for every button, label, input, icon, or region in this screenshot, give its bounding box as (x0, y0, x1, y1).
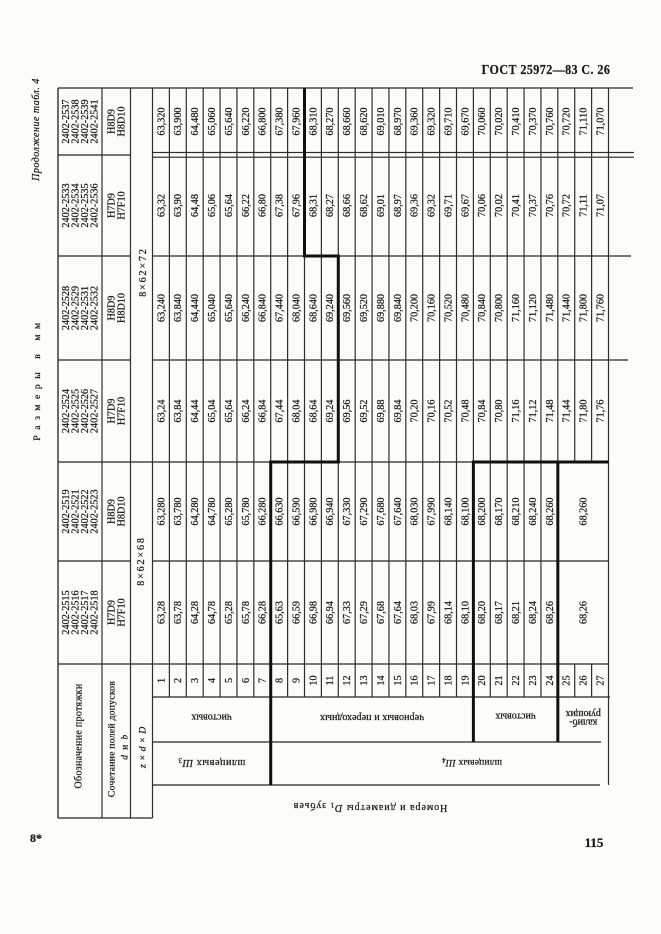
svg-text:66,840: 66,840 (258, 294, 269, 322)
svg-text:H7F10: H7F10 (117, 598, 128, 626)
svg-text:67,38: 67,38 (275, 194, 286, 217)
svg-text:z×d×D: z×d×D (138, 723, 149, 769)
svg-text:68,26: 68,26 (545, 601, 556, 624)
svg-text:71,80: 71,80 (579, 400, 590, 423)
svg-text:65,640: 65,640 (224, 107, 235, 135)
svg-text:68,31: 68,31 (308, 194, 319, 217)
svg-text:66,80: 66,80 (258, 194, 269, 217)
svg-text:70,800: 70,800 (494, 294, 505, 322)
svg-text:71,440: 71,440 (562, 294, 573, 322)
svg-text:15: 15 (393, 675, 404, 685)
svg-text:71,160: 71,160 (511, 294, 522, 322)
svg-text:67,330: 67,330 (342, 497, 353, 525)
svg-text:69,71: 69,71 (444, 194, 455, 217)
svg-text:69,560: 69,560 (342, 294, 353, 322)
svg-text:66,28: 66,28 (258, 601, 269, 624)
svg-text:21: 21 (494, 675, 505, 685)
svg-text:70,72: 70,72 (562, 194, 573, 217)
svg-text:65,060: 65,060 (207, 107, 218, 135)
svg-text:67,990: 67,990 (427, 497, 438, 525)
svg-text:14: 14 (376, 675, 387, 685)
svg-text:64,780: 64,780 (207, 497, 218, 525)
svg-text:70,80: 70,80 (494, 400, 505, 423)
svg-text:3: 3 (190, 678, 201, 683)
svg-text:67,33: 67,33 (342, 601, 353, 624)
svg-text:68,170: 68,170 (494, 497, 505, 525)
svg-text:68,20: 68,20 (477, 601, 488, 624)
svg-text:Обозначение протяжки: Обозначение протяжки (73, 683, 84, 788)
svg-text:63,240: 63,240 (156, 294, 167, 322)
svg-text:22: 22 (511, 675, 522, 685)
svg-text:69,24: 69,24 (325, 400, 336, 423)
svg-text:68,10: 68,10 (460, 601, 471, 624)
svg-text:2402-2541: 2402-2541 (90, 99, 101, 143)
svg-text:70,020: 70,020 (494, 107, 505, 135)
svg-text:65,06: 65,06 (207, 194, 218, 217)
svg-text:66,800: 66,800 (258, 107, 269, 135)
svg-text:27: 27 (596, 675, 607, 685)
svg-text:68,17: 68,17 (494, 601, 505, 624)
svg-text:69,840: 69,840 (393, 294, 404, 322)
svg-text:2402-2518: 2402-2518 (90, 590, 101, 634)
svg-text:63,840: 63,840 (173, 294, 184, 322)
svg-text:8×62×72: 8×62×72 (138, 247, 149, 297)
svg-text:66,24: 66,24 (241, 400, 252, 423)
svg-text:Размеры в мм: Размеры в мм (32, 317, 43, 440)
svg-text:65,78: 65,78 (241, 601, 252, 624)
svg-text:63,90: 63,90 (173, 194, 184, 217)
svg-text:71,110: 71,110 (579, 108, 590, 136)
svg-text:67,290: 67,290 (359, 497, 370, 525)
svg-text:68,200: 68,200 (477, 497, 488, 525)
svg-text:68,04: 68,04 (292, 400, 303, 423)
svg-text:67,96: 67,96 (292, 194, 303, 217)
svg-text:68,21: 68,21 (511, 601, 522, 624)
svg-text:66,220: 66,220 (241, 107, 252, 135)
svg-text:67,29: 67,29 (359, 601, 370, 624)
svg-text:68,970: 68,970 (393, 107, 404, 135)
svg-text:8×62×68: 8×62×68 (136, 536, 147, 586)
svg-text:68,27: 68,27 (325, 194, 336, 217)
svg-text:8*: 8* (30, 831, 42, 845)
svg-text:70,84: 70,84 (477, 400, 488, 423)
svg-text:63,32: 63,32 (156, 194, 167, 217)
svg-text:чистовых: чистовых (495, 711, 536, 722)
svg-text:26: 26 (579, 675, 590, 685)
svg-text:68,62: 68,62 (359, 194, 370, 217)
svg-text:69,67: 69,67 (460, 194, 471, 217)
svg-text:2402-2527: 2402-2527 (90, 389, 101, 433)
svg-text:66,98: 66,98 (308, 601, 319, 624)
svg-text:63,84: 63,84 (173, 400, 184, 423)
svg-text:шлицевых Ш4: шлицевых Ш4 (442, 756, 502, 767)
svg-text:65,64: 65,64 (224, 194, 235, 217)
svg-text:70,37: 70,37 (528, 194, 539, 217)
svg-text:Сочетание полей допусков: Сочетание полей допусков (107, 681, 118, 798)
svg-text:71,76: 71,76 (596, 400, 607, 423)
svg-text:66,630: 66,630 (275, 497, 286, 525)
svg-text:H8D10: H8D10 (117, 107, 128, 137)
svg-text:65,280: 65,280 (224, 497, 235, 525)
svg-text:69,52: 69,52 (359, 400, 370, 423)
svg-text:19: 19 (460, 675, 471, 685)
svg-text:69,010: 69,010 (376, 107, 387, 135)
svg-text:63,24: 63,24 (156, 400, 167, 423)
svg-text:69,320: 69,320 (427, 107, 438, 135)
svg-text:70,06: 70,06 (477, 194, 488, 217)
svg-text:18: 18 (444, 675, 455, 685)
svg-text:чистовых: чистовых (191, 712, 232, 723)
svg-text:17: 17 (427, 675, 438, 685)
svg-text:71,16: 71,16 (511, 400, 522, 423)
svg-text:64,480: 64,480 (190, 107, 201, 135)
svg-text:69,710: 69,710 (444, 107, 455, 135)
svg-text:68,260: 68,260 (545, 497, 556, 525)
svg-text:67,960: 67,960 (292, 107, 303, 135)
svg-text:2402-2536: 2402-2536 (90, 183, 101, 227)
svg-text:67,640: 67,640 (393, 497, 404, 525)
svg-text:69,670: 69,670 (460, 107, 471, 135)
svg-text:68,030: 68,030 (410, 497, 421, 525)
svg-text:8: 8 (275, 678, 286, 683)
svg-text:69,520: 69,520 (359, 294, 370, 322)
svg-text:115: 115 (585, 835, 604, 850)
svg-text:68,240: 68,240 (528, 497, 539, 525)
svg-text:64,78: 64,78 (207, 601, 218, 624)
svg-text:d и b: d и b (121, 733, 131, 759)
svg-text:20: 20 (477, 675, 488, 685)
svg-text:67,680: 67,680 (376, 497, 387, 525)
svg-text:ГОСТ 25972—83 С. 26: ГОСТ 25972—83 С. 26 (482, 61, 611, 77)
svg-text:70,200: 70,200 (410, 294, 421, 322)
svg-text:69,56: 69,56 (342, 400, 353, 423)
svg-text:70,20: 70,20 (410, 400, 421, 423)
svg-text:65,04: 65,04 (207, 400, 218, 423)
svg-text:66,84: 66,84 (258, 400, 269, 423)
svg-text:64,440: 64,440 (190, 294, 201, 322)
svg-text:63,320: 63,320 (156, 107, 167, 135)
svg-text:13: 13 (359, 675, 370, 685)
svg-text:2402-2532: 2402-2532 (90, 286, 101, 330)
svg-text:70,02: 70,02 (494, 194, 505, 217)
svg-text:64,28: 64,28 (190, 601, 201, 624)
svg-text:рующих: рующих (566, 708, 601, 719)
svg-text:70,720: 70,720 (562, 107, 573, 135)
svg-text:67,440: 67,440 (275, 294, 286, 322)
svg-text:71,07: 71,07 (596, 194, 607, 217)
svg-text:66,59: 66,59 (292, 601, 303, 624)
svg-text:64,280: 64,280 (190, 497, 201, 525)
svg-text:68,03: 68,03 (410, 601, 421, 624)
svg-text:71,12: 71,12 (528, 400, 539, 423)
svg-text:70,840: 70,840 (477, 294, 488, 322)
svg-text:66,280: 66,280 (258, 497, 269, 525)
svg-text:66,980: 66,980 (308, 497, 319, 525)
svg-text:67,68: 67,68 (376, 601, 387, 624)
svg-text:67,99: 67,99 (427, 601, 438, 624)
svg-text:71,760: 71,760 (596, 294, 607, 322)
svg-text:68,260: 68,260 (579, 497, 590, 525)
svg-text:68,620: 68,620 (359, 107, 370, 135)
svg-text:6: 6 (241, 678, 252, 683)
svg-text:70,410: 70,410 (511, 107, 522, 135)
svg-text:66,94: 66,94 (325, 601, 336, 624)
svg-text:71,44: 71,44 (562, 400, 573, 423)
svg-text:66,590: 66,590 (292, 497, 303, 525)
svg-text:12: 12 (342, 675, 353, 685)
svg-text:10: 10 (308, 675, 319, 685)
svg-text:63,280: 63,280 (156, 497, 167, 525)
svg-text:68,24: 68,24 (528, 601, 539, 624)
svg-text:9: 9 (292, 678, 303, 683)
svg-text:71,48: 71,48 (545, 400, 556, 423)
svg-text:70,480: 70,480 (460, 294, 471, 322)
svg-text:70,160: 70,160 (427, 294, 438, 322)
svg-text:70,520: 70,520 (444, 294, 455, 322)
svg-text:70,16: 70,16 (427, 400, 438, 423)
svg-text:68,660: 68,660 (342, 107, 353, 135)
svg-text:71,480: 71,480 (545, 294, 556, 322)
svg-text:68,040: 68,040 (292, 294, 303, 322)
svg-text:68,310: 68,310 (308, 107, 319, 135)
svg-text:70,41: 70,41 (511, 194, 522, 217)
svg-text:68,210: 68,210 (511, 497, 522, 525)
svg-text:70,060: 70,060 (477, 107, 488, 135)
svg-text:H7F10: H7F10 (117, 191, 128, 219)
svg-text:71,800: 71,800 (579, 294, 590, 322)
svg-text:4: 4 (207, 678, 218, 683)
svg-text:H8D10: H8D10 (117, 497, 128, 527)
svg-text:68,100: 68,100 (460, 497, 471, 525)
svg-text:68,66: 68,66 (342, 194, 353, 217)
svg-text:63,28: 63,28 (156, 601, 167, 624)
svg-text:68,97: 68,97 (393, 194, 404, 217)
svg-text:65,64: 65,64 (224, 400, 235, 423)
svg-text:64,48: 64,48 (190, 194, 201, 217)
svg-text:66,22: 66,22 (241, 194, 252, 217)
svg-text:65,040: 65,040 (207, 294, 218, 322)
svg-text:69,240: 69,240 (325, 294, 336, 322)
svg-text:69,360: 69,360 (410, 107, 421, 135)
svg-text:68,270: 68,270 (325, 107, 336, 135)
svg-text:H7F10: H7F10 (117, 397, 128, 425)
svg-text:70,76: 70,76 (545, 194, 556, 217)
svg-text:5: 5 (224, 678, 235, 683)
svg-text:63,78: 63,78 (173, 601, 184, 624)
svg-text:63,780: 63,780 (173, 497, 184, 525)
svg-text:черновых и переходных: черновых и переходных (320, 712, 424, 723)
svg-text:64,44: 64,44 (190, 400, 201, 423)
svg-text:16: 16 (410, 675, 421, 685)
svg-text:68,640: 68,640 (308, 294, 319, 322)
svg-text:69,01: 69,01 (376, 194, 387, 217)
svg-text:63,900: 63,900 (173, 107, 184, 135)
svg-text:67,64: 67,64 (393, 601, 404, 624)
svg-text:70,48: 70,48 (460, 400, 471, 423)
svg-text:68,26: 68,26 (579, 601, 590, 624)
svg-text:2402-2523: 2402-2523 (90, 489, 101, 533)
svg-text:25: 25 (562, 675, 573, 685)
svg-text:69,32: 69,32 (427, 194, 438, 217)
svg-text:67,44: 67,44 (275, 400, 286, 423)
svg-text:65,63: 65,63 (275, 601, 286, 624)
svg-text:67,380: 67,380 (275, 107, 286, 135)
svg-text:69,88: 69,88 (376, 400, 387, 423)
svg-text:71,070: 71,070 (596, 107, 607, 135)
svg-text:71,120: 71,120 (528, 294, 539, 322)
svg-text:66,940: 66,940 (325, 497, 336, 525)
svg-text:2: 2 (173, 678, 184, 683)
svg-text:70,760: 70,760 (545, 107, 556, 135)
svg-text:68,64: 68,64 (308, 400, 319, 423)
svg-text:70,370: 70,370 (528, 107, 539, 135)
svg-text:65,28: 65,28 (224, 601, 235, 624)
svg-text:7: 7 (258, 678, 269, 683)
svg-text:68,140: 68,140 (444, 497, 455, 525)
svg-text:11: 11 (325, 676, 336, 686)
svg-text:65,780: 65,780 (241, 497, 252, 525)
svg-text:68,14: 68,14 (444, 601, 455, 624)
svg-text:69,36: 69,36 (410, 194, 421, 217)
svg-text:66,240: 66,240 (241, 294, 252, 322)
svg-text:23: 23 (528, 675, 539, 685)
svg-text:1: 1 (156, 678, 167, 683)
svg-text:70,52: 70,52 (444, 400, 455, 423)
svg-text:69,880: 69,880 (376, 294, 387, 322)
svg-text:шлицевых Ш3: шлицевых Ш3 (178, 756, 245, 768)
svg-text:65,640: 65,640 (224, 294, 235, 322)
svg-text:69,84: 69,84 (393, 400, 404, 423)
svg-text:Продолжение табл. 4: Продолжение табл. 4 (31, 78, 42, 182)
svg-text:24: 24 (545, 675, 556, 685)
svg-text:71,11: 71,11 (579, 194, 590, 217)
svg-text:H8D10: H8D10 (117, 293, 128, 323)
